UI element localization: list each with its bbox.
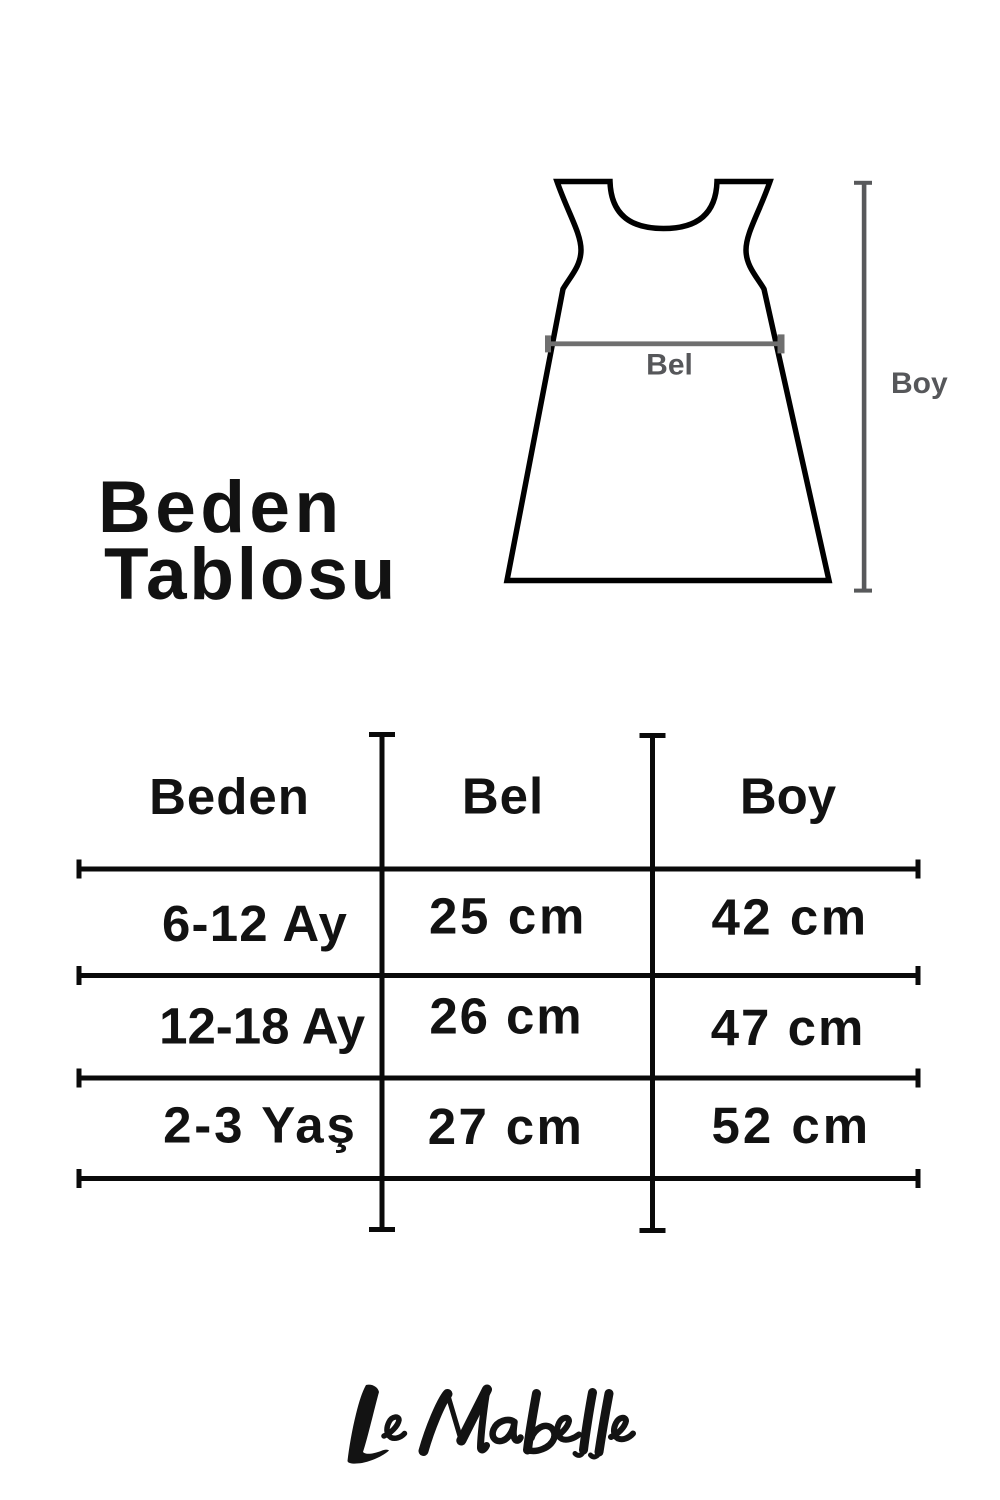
svg-text:12-18 Ay: 12-18 Ay <box>159 997 366 1054</box>
svg-text:Beden: Beden <box>149 768 310 825</box>
svg-text:42 cm: 42 cm <box>711 888 868 945</box>
svg-text:52 cm: 52 cm <box>711 1097 871 1154</box>
svg-text:6-12 Ay: 6-12 Ay <box>162 895 348 952</box>
svg-text:Tablosu: Tablosu <box>104 534 398 615</box>
svg-text:27 cm: 27 cm <box>428 1098 585 1155</box>
svg-text:Bel: Bel <box>462 768 544 825</box>
svg-text:Boy: Boy <box>740 768 837 825</box>
svg-text:26 cm: 26 cm <box>429 988 583 1045</box>
svg-text:Bel: Bel <box>646 349 693 382</box>
svg-text:25 cm: 25 cm <box>429 887 587 944</box>
svg-text:Boy: Boy <box>891 367 948 400</box>
svg-text:2-3 Yaş: 2-3 Yaş <box>163 1096 358 1153</box>
svg-text:47 cm: 47 cm <box>711 999 866 1056</box>
